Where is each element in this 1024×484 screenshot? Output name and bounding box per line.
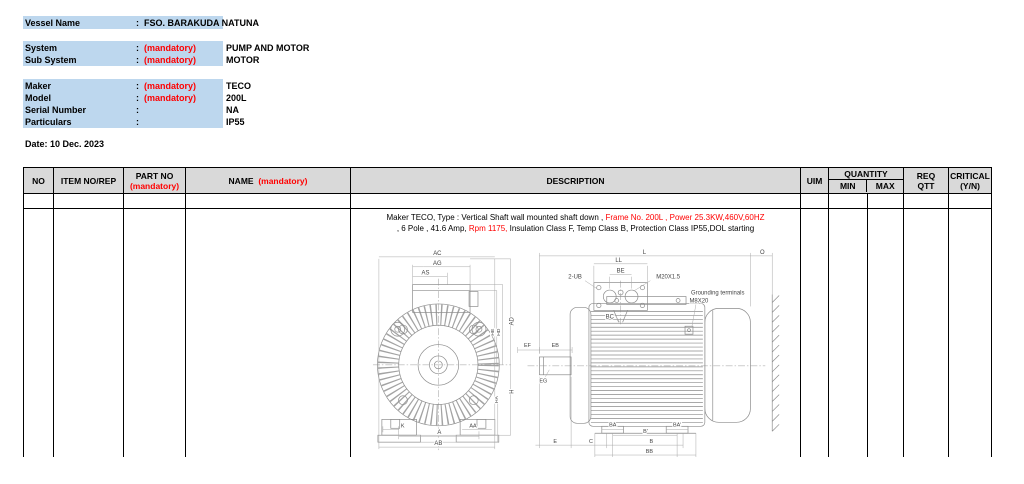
serial-number-value: NA (226, 104, 239, 116)
sub-system-label: Sub System (25, 54, 77, 66)
empty-cell (186, 194, 351, 208)
col-header-no: NO (24, 168, 54, 193)
svg-text:A: A (437, 430, 441, 436)
system-colon: : (136, 42, 139, 54)
svg-text:AB: AB (434, 441, 442, 447)
particulars-label: Particulars (25, 116, 72, 128)
end-bell (570, 307, 591, 423)
svg-text:M20X1.5: M20X1.5 (656, 275, 680, 281)
maker-mandatory: (mandatory) (144, 80, 196, 92)
svg-text:BA': BA' (673, 422, 681, 428)
date-label: Date: 10 Dec. 2023 (25, 139, 104, 149)
serial-number-label: Serial Number (25, 104, 86, 116)
col-header-part-no: PART NO (mandatory) (124, 168, 186, 193)
wall-section (772, 295, 779, 432)
vessel-name-value: FSO. BARAKUDA NATUNA (144, 17, 259, 29)
description-rich-text: Maker TECO, Type : Vertical Shaft wall m… (351, 209, 800, 234)
col-header-quantity: QUANTITY MIN MAX (829, 168, 904, 193)
svg-text:HD: HD (496, 328, 502, 336)
svg-text:M8X20: M8X20 (689, 298, 709, 304)
svg-text:AA: AA (469, 423, 477, 429)
svg-text:C: C (589, 439, 593, 445)
cell-uim (801, 209, 829, 457)
empty-cell (54, 194, 124, 208)
vessel-name-label: Vessel Name (25, 17, 80, 29)
cell-min (829, 209, 868, 457)
field-system: System : (mandatory) PUMP AND MOTOR (0, 42, 1024, 54)
empty-cell (829, 194, 868, 208)
svg-text:EF: EF (524, 343, 532, 349)
empty-cell (949, 194, 991, 208)
col-header-req-qtt: REQ QTT (904, 168, 949, 193)
mounting-foot (382, 419, 417, 435)
dimension-lines (379, 253, 772, 457)
cell-req-qtt (904, 209, 949, 457)
cooling-fins-horizontal (591, 311, 703, 422)
cell-part-no (124, 209, 186, 457)
maker-colon: : (136, 80, 139, 92)
svg-text:AC: AC (433, 251, 442, 257)
svg-text:EG: EG (539, 379, 547, 385)
part-no-mandatory-note: (mandatory) (130, 181, 179, 191)
empty-cell (351, 194, 801, 208)
serial-number-colon: : (136, 104, 139, 116)
cell-name (186, 209, 351, 457)
svg-text:B: B (650, 439, 654, 445)
cell-max (868, 209, 904, 457)
name-mandatory-note: (mandatory) (258, 176, 307, 186)
field-sub-system: Sub System : (mandatory) MOTOR (0, 54, 1024, 66)
svg-text:2-UB: 2-UB (568, 275, 582, 281)
system-value: PUMP AND MOTOR (226, 42, 309, 54)
col-header-min: MIN (829, 180, 867, 192)
sub-system-value: MOTOR (226, 54, 259, 66)
svg-text:LL: LL (615, 258, 622, 264)
particulars-value: IP55 (226, 116, 245, 128)
svg-text:H: H (510, 389, 516, 393)
dimension-labels: ACAGASADHEHDHHAKAAAABLOLLBE2-UBM20X1.5Gr… (401, 250, 765, 455)
col-header-item-no-rep: ITEM NO/REP (54, 168, 124, 193)
svg-text:BE: BE (617, 269, 625, 275)
field-serial-number: Serial Number : NA (0, 104, 1024, 116)
field-vessel-name: Vessel Name : FSO. BARAKUDA NATUNA (0, 17, 1024, 29)
col-header-uim: UIM (801, 168, 829, 193)
quantity-label: QUANTITY (829, 168, 903, 180)
motor-body (589, 303, 705, 426)
field-model: Model : (mandatory) 200L (0, 92, 1024, 104)
col-header-critical: CRITICAL (Y/N) (949, 168, 991, 193)
cell-item-no-rep (54, 209, 124, 457)
empty-cell (868, 194, 904, 208)
svg-text:HA: HA (494, 395, 500, 403)
svg-text:O: O (760, 250, 765, 256)
svg-text:B': B' (643, 429, 648, 435)
particulars-colon: : (136, 116, 139, 128)
empty-cell (904, 194, 949, 208)
cell-description: Maker TECO, Type : Vertical Shaft wall m… (351, 209, 801, 457)
model-value: 200L (226, 92, 247, 104)
side-view-drawing (539, 283, 779, 434)
svg-text:AD: AD (510, 317, 516, 325)
col-header-name: NAME (mandatory) (186, 168, 351, 193)
model-label: Model (25, 92, 51, 104)
parts-table: NO ITEM NO/REP PART NO (mandatory) NAME … (23, 167, 992, 457)
sub-system-colon: : (136, 54, 139, 66)
svg-text:AS: AS (422, 271, 430, 277)
svg-text:K: K (401, 423, 405, 429)
col-header-description: DESCRIPTION (351, 168, 801, 193)
model-colon: : (136, 92, 139, 104)
table-row: Maker TECO, Type : Vertical Shaft wall m… (24, 209, 991, 457)
sub-system-mandatory: (mandatory) (144, 54, 196, 66)
svg-text:BB: BB (646, 449, 654, 455)
empty-spacer-row (24, 194, 991, 209)
system-label: System (25, 42, 57, 54)
svg-text:L: L (643, 250, 647, 256)
table-header-row: NO ITEM NO/REP PART NO (mandatory) NAME … (24, 168, 991, 194)
field-particulars: Particulars : IP55 (0, 116, 1024, 128)
model-mandatory: (mandatory) (144, 92, 196, 104)
empty-cell (24, 194, 54, 208)
motor-technical-drawing: ACAGASADHEHDHHAKAAAABLOLLBE2-UBM20X1.5Gr… (367, 245, 797, 457)
svg-text:BA: BA (609, 422, 617, 428)
svg-text:EB: EB (552, 343, 560, 349)
svg-text:HE: HE (490, 328, 496, 336)
maker-value: TECO (226, 80, 251, 92)
cell-no (24, 209, 54, 457)
empty-cell (124, 194, 186, 208)
wall-hatching (772, 296, 779, 432)
field-maker: Maker : (mandatory) TECO (0, 80, 1024, 92)
col-header-max: MAX (867, 180, 903, 192)
empty-cell (801, 194, 829, 208)
mounting-foot (460, 419, 495, 435)
maker-label: Maker (25, 80, 51, 92)
cell-critical (949, 209, 991, 457)
svg-text:AG: AG (433, 261, 442, 267)
svg-text:BC: BC (606, 314, 615, 320)
vessel-name-colon: : (136, 17, 139, 29)
svg-text:E: E (553, 439, 557, 445)
system-mandatory: (mandatory) (144, 42, 196, 54)
fan-cover (705, 308, 751, 422)
svg-text:Grounding terminals: Grounding terminals (691, 291, 744, 297)
